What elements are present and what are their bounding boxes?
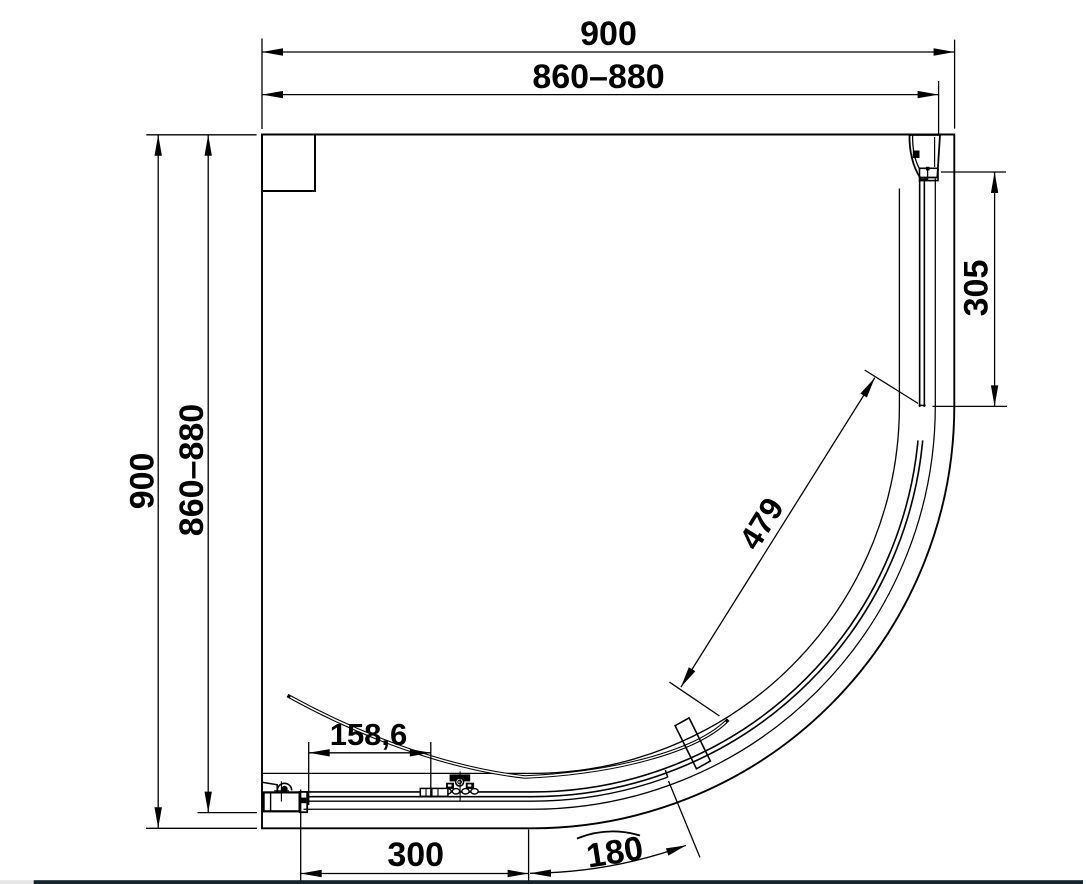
svg-text:900: 900: [580, 15, 637, 53]
svg-text:158,6: 158,6: [330, 717, 408, 752]
svg-text:300: 300: [387, 836, 444, 874]
svg-text:860–880: 860–880: [532, 58, 664, 96]
svg-text:860–880: 860–880: [173, 404, 211, 536]
svg-text:900: 900: [123, 453, 161, 510]
svg-text:305: 305: [958, 260, 996, 317]
